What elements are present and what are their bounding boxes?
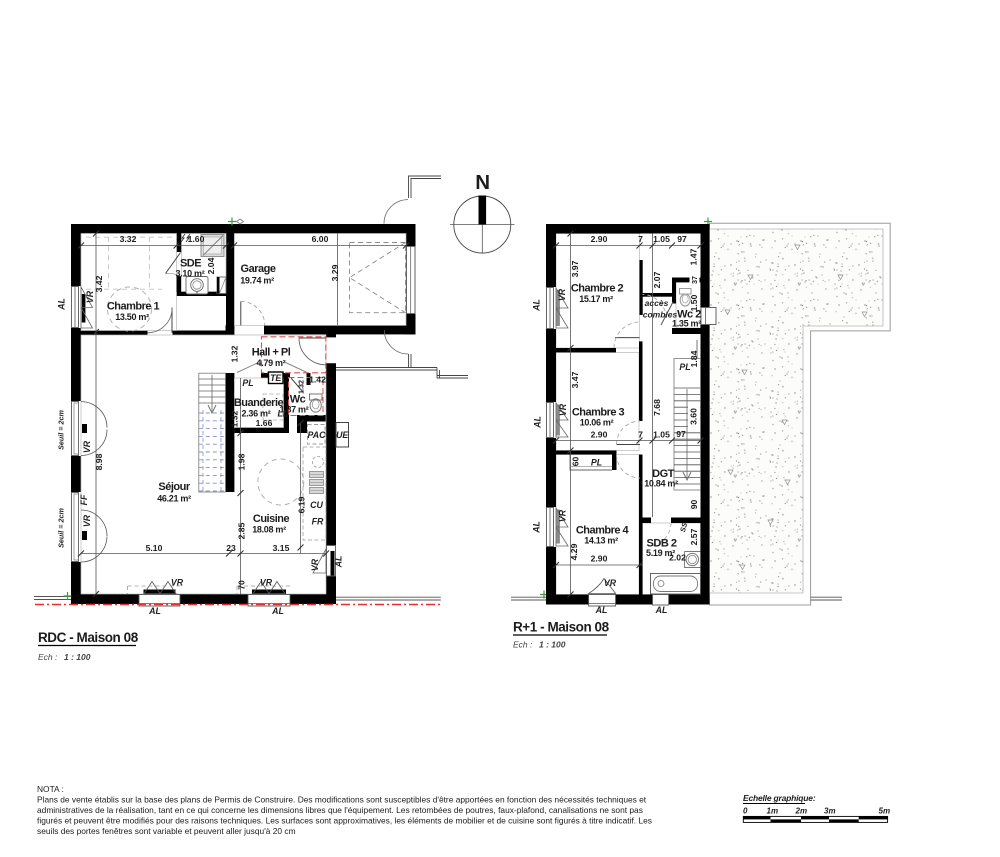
svg-text:3.15: 3.15 bbox=[273, 543, 290, 553]
svg-text:Plans de vente établis sur la: Plans de vente établis sur la base des p… bbox=[37, 795, 647, 805]
svg-text:2.36 m²: 2.36 m² bbox=[242, 409, 271, 419]
svg-text:3.60: 3.60 bbox=[689, 408, 699, 425]
svg-text:Ech :: Ech : bbox=[513, 640, 533, 650]
svg-text:Chambre 1: Chambre 1 bbox=[107, 301, 160, 313]
svg-text:6.00: 6.00 bbox=[312, 234, 329, 244]
svg-text:seuils des portes fenêtres son: seuils des portes fenêtres sont variable… bbox=[37, 826, 296, 836]
svg-text:Seuil = 2cm: Seuil = 2cm bbox=[57, 508, 66, 548]
svg-text:VR: VR bbox=[171, 578, 184, 588]
svg-text:administratives de la réalisat: administratives de la réalisation, tant … bbox=[37, 805, 643, 815]
svg-text:CU: CU bbox=[310, 500, 323, 510]
svg-text:7.68: 7.68 bbox=[652, 399, 662, 416]
svg-text:AL: AL bbox=[595, 605, 608, 615]
svg-text:RDC - Maison 08: RDC - Maison 08 bbox=[38, 630, 139, 645]
svg-text:1.66: 1.66 bbox=[256, 418, 273, 428]
svg-text:VR: VR bbox=[310, 558, 320, 571]
svg-text:FF: FF bbox=[79, 494, 89, 505]
svg-text:15.17 m²: 15.17 m² bbox=[579, 294, 613, 304]
svg-text:VR: VR bbox=[604, 578, 617, 588]
svg-text:5.10: 5.10 bbox=[146, 543, 163, 553]
svg-text:10.84 m²: 10.84 m² bbox=[644, 479, 678, 489]
svg-text:5m: 5m bbox=[879, 807, 891, 816]
svg-text:3.97: 3.97 bbox=[570, 260, 580, 277]
svg-text:UE: UE bbox=[336, 430, 349, 440]
svg-text:NOTA :: NOTA : bbox=[37, 784, 64, 794]
svg-text:1.05: 1.05 bbox=[653, 430, 670, 440]
svg-text:Echelle graphique:: Echelle graphique: bbox=[743, 793, 816, 803]
svg-text:AL: AL bbox=[533, 416, 543, 429]
svg-text:2m: 2m bbox=[795, 807, 808, 816]
svg-text:2.04: 2.04 bbox=[206, 257, 216, 274]
svg-text:R+1 - Maison 08: R+1 - Maison 08 bbox=[513, 620, 610, 635]
svg-text:AL: AL bbox=[334, 556, 344, 569]
svg-text:Cuisine: Cuisine bbox=[253, 513, 290, 525]
svg-text:FR: FR bbox=[312, 517, 324, 527]
svg-text:2.57: 2.57 bbox=[689, 528, 699, 545]
svg-text:figurés et peuvent être modifi: figurés et peuvent être modifiés pour de… bbox=[37, 816, 652, 826]
svg-text:Chambre 2: Chambre 2 bbox=[571, 283, 624, 295]
svg-text:VR: VR bbox=[82, 440, 92, 453]
svg-text:Garage: Garage bbox=[241, 263, 276, 275]
svg-text:7: 7 bbox=[638, 430, 643, 440]
svg-text:5.19 m²: 5.19 m² bbox=[646, 548, 675, 558]
svg-text:1.35 m²: 1.35 m² bbox=[672, 319, 701, 329]
svg-text:18.08 m²: 18.08 m² bbox=[252, 525, 286, 535]
svg-text:1.87 m²: 1.87 m² bbox=[280, 405, 309, 415]
svg-text:AL: AL bbox=[532, 299, 542, 312]
svg-text:37: 37 bbox=[690, 276, 699, 284]
svg-text:2.90: 2.90 bbox=[591, 430, 608, 440]
svg-text:4.29: 4.29 bbox=[569, 543, 579, 560]
svg-text:Hall + Pl: Hall + Pl bbox=[252, 347, 291, 359]
svg-text:2.90: 2.90 bbox=[591, 554, 608, 564]
svg-text:N: N bbox=[475, 171, 490, 194]
svg-text:23: 23 bbox=[226, 543, 236, 553]
svg-text:VR: VR bbox=[260, 578, 273, 588]
svg-text:1.60: 1.60 bbox=[188, 234, 205, 244]
svg-text:70: 70 bbox=[237, 580, 247, 590]
svg-text:2.90: 2.90 bbox=[591, 234, 608, 244]
svg-text:10.06 m²: 10.06 m² bbox=[580, 418, 614, 428]
svg-text:AL: AL bbox=[271, 606, 284, 616]
svg-text:1.32: 1.32 bbox=[230, 345, 240, 362]
svg-text:90: 90 bbox=[689, 500, 699, 510]
svg-text:2.07: 2.07 bbox=[652, 271, 662, 288]
svg-text:1.98: 1.98 bbox=[237, 453, 247, 470]
svg-text:VR: VR bbox=[558, 509, 568, 522]
svg-text:97: 97 bbox=[676, 429, 686, 439]
svg-text:3.47: 3.47 bbox=[570, 371, 580, 388]
svg-text:0: 0 bbox=[743, 807, 748, 816]
svg-text:VR: VR bbox=[558, 403, 568, 416]
svg-text:TE: TE bbox=[270, 373, 282, 383]
svg-text:3.29: 3.29 bbox=[330, 264, 340, 281]
svg-text:19.74 m²: 19.74 m² bbox=[240, 276, 274, 286]
svg-text:1 : 100: 1 : 100 bbox=[539, 640, 566, 650]
svg-text:PAC: PAC bbox=[308, 430, 327, 440]
svg-text:3.42: 3.42 bbox=[94, 275, 104, 292]
svg-text:1.32: 1.32 bbox=[297, 380, 306, 394]
svg-text:3.32: 3.32 bbox=[120, 234, 137, 244]
svg-text:1.05: 1.05 bbox=[653, 234, 670, 244]
svg-text:1.32: 1.32 bbox=[230, 410, 240, 427]
svg-text:VR: VR bbox=[557, 288, 567, 301]
svg-text:14.13 m²: 14.13 m² bbox=[584, 536, 618, 546]
svg-text:accès: accès bbox=[645, 298, 669, 308]
svg-text:VR: VR bbox=[82, 514, 92, 527]
svg-text:AL: AL bbox=[57, 298, 67, 311]
svg-text:Buanderie: Buanderie bbox=[234, 397, 284, 409]
svg-text:AL: AL bbox=[532, 521, 542, 534]
svg-text:AL: AL bbox=[148, 606, 161, 616]
svg-text:46.21 m²: 46.21 m² bbox=[157, 494, 191, 504]
svg-text:97: 97 bbox=[677, 234, 687, 244]
svg-text:3m: 3m bbox=[824, 807, 836, 816]
svg-text:Ech :: Ech : bbox=[38, 652, 58, 662]
svg-text:3.10 m²: 3.10 m² bbox=[176, 269, 205, 279]
svg-text:1.47: 1.47 bbox=[689, 248, 699, 265]
svg-text:13.50 m²: 13.50 m² bbox=[115, 312, 149, 322]
svg-text:1.42: 1.42 bbox=[309, 375, 326, 385]
svg-text:AL: AL bbox=[655, 605, 668, 615]
svg-text:2.85: 2.85 bbox=[237, 522, 247, 539]
svg-text:7: 7 bbox=[638, 234, 643, 244]
svg-text:8.98: 8.98 bbox=[94, 453, 104, 470]
svg-text:Séjour: Séjour bbox=[158, 481, 190, 493]
svg-text:60: 60 bbox=[571, 457, 581, 467]
svg-text:4.79 m²: 4.79 m² bbox=[257, 358, 286, 368]
svg-text:1 : 100: 1 : 100 bbox=[64, 652, 91, 662]
svg-text:PL: PL bbox=[591, 458, 602, 468]
svg-text:VR: VR bbox=[85, 290, 95, 303]
svg-text:Seuil = 2cm: Seuil = 2cm bbox=[57, 410, 66, 450]
svg-text:PL: PL bbox=[242, 378, 253, 388]
svg-text:1m: 1m bbox=[767, 807, 779, 816]
svg-text:PL: PL bbox=[679, 362, 690, 372]
svg-text:6.19: 6.19 bbox=[297, 496, 307, 513]
